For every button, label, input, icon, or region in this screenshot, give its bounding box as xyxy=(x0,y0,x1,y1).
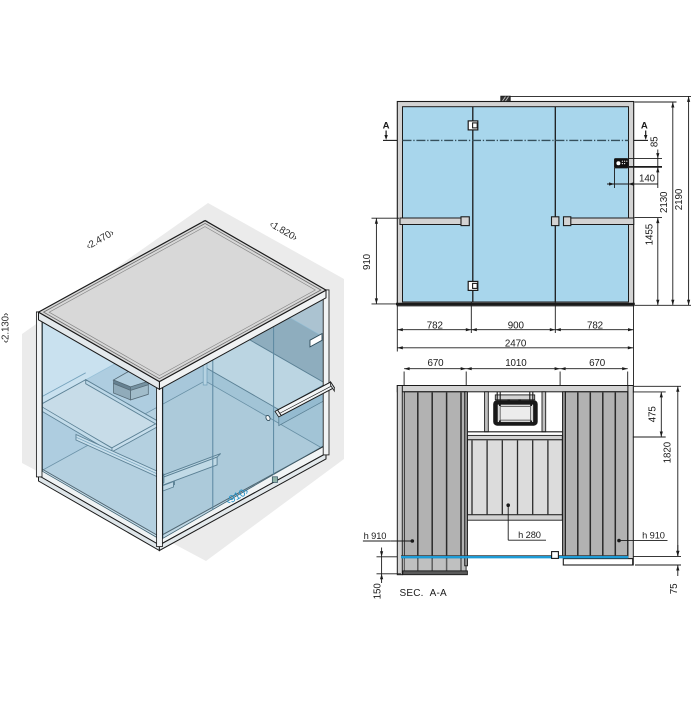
svg-text:h 910: h 910 xyxy=(642,530,665,540)
svg-text:140: 140 xyxy=(639,174,656,185)
svg-text:1455: 1455 xyxy=(644,223,655,245)
svg-text:2470: 2470 xyxy=(505,339,527,350)
svg-text:782: 782 xyxy=(427,320,443,331)
svg-text:1820: 1820 xyxy=(662,441,673,463)
svg-text:A: A xyxy=(641,120,648,131)
svg-text:782: 782 xyxy=(587,320,603,331)
svg-text:900: 900 xyxy=(508,320,525,331)
svg-text:475: 475 xyxy=(648,406,659,423)
svg-text:910: 910 xyxy=(362,253,373,270)
svg-text:h 280: h 280 xyxy=(518,530,541,540)
svg-text:1010: 1010 xyxy=(505,358,527,369)
svg-text:150: 150 xyxy=(372,583,383,600)
svg-text:‹2.130›: ‹2.130› xyxy=(1,313,12,343)
svg-text:2190: 2190 xyxy=(674,188,685,210)
svg-text:670: 670 xyxy=(427,358,444,369)
svg-text:h 910: h 910 xyxy=(364,531,387,541)
svg-text:85: 85 xyxy=(649,136,660,147)
svg-text:75: 75 xyxy=(669,583,680,594)
svg-text:SEC. A-A: SEC. A-A xyxy=(400,588,447,599)
svg-text:A: A xyxy=(383,120,390,131)
svg-text:2130: 2130 xyxy=(659,191,670,213)
svg-text:670: 670 xyxy=(589,358,606,369)
